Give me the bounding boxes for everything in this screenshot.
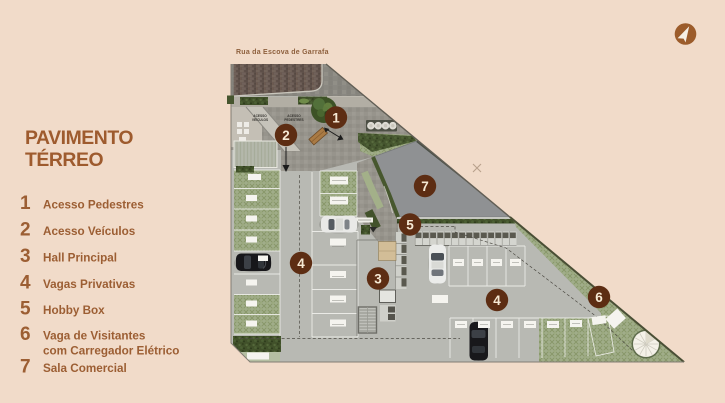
svg-text:Rua da Escova de Garrafa: Rua da Escova de Garrafa xyxy=(236,49,329,56)
svg-text:4: 4 xyxy=(493,293,501,308)
svg-text:VEÍCULOS: VEÍCULOS xyxy=(252,117,268,122)
svg-text:3: 3 xyxy=(374,271,382,286)
svg-text:Sala Comercial: Sala Comercial xyxy=(43,362,127,375)
svg-text:5: 5 xyxy=(20,299,31,320)
svg-text:Hall Principal: Hall Principal xyxy=(43,252,117,265)
svg-text:5: 5 xyxy=(406,217,414,232)
svg-text:Vaga de Visitantes: Vaga de Visitantes xyxy=(43,330,146,343)
svg-text:3: 3 xyxy=(20,246,31,267)
svg-text:6: 6 xyxy=(20,324,31,345)
svg-text:Hobby Box: Hobby Box xyxy=(43,304,105,317)
svg-text:4: 4 xyxy=(20,273,31,294)
svg-text:7: 7 xyxy=(421,179,429,194)
svg-text:6: 6 xyxy=(595,290,603,305)
svg-text:2: 2 xyxy=(282,128,290,143)
svg-text:com Carregador Elétrico: com Carregador Elétrico xyxy=(43,345,179,358)
svg-text:PEDESTRES: PEDESTRES xyxy=(284,118,303,122)
svg-text:4: 4 xyxy=(297,256,305,271)
svg-text:PAVIMENTO: PAVIMENTO xyxy=(25,127,133,149)
svg-text:7: 7 xyxy=(20,357,31,378)
svg-text:2: 2 xyxy=(20,220,31,241)
svg-text:TÉRREO: TÉRREO xyxy=(25,148,103,171)
svg-text:Acesso Pedestres: Acesso Pedestres xyxy=(43,199,144,212)
svg-text:1: 1 xyxy=(20,193,31,214)
svg-text:Vagas Privativas: Vagas Privativas xyxy=(43,278,136,291)
svg-text:Acesso Veículos: Acesso Veículos xyxy=(43,225,136,238)
svg-text:1: 1 xyxy=(332,110,340,125)
